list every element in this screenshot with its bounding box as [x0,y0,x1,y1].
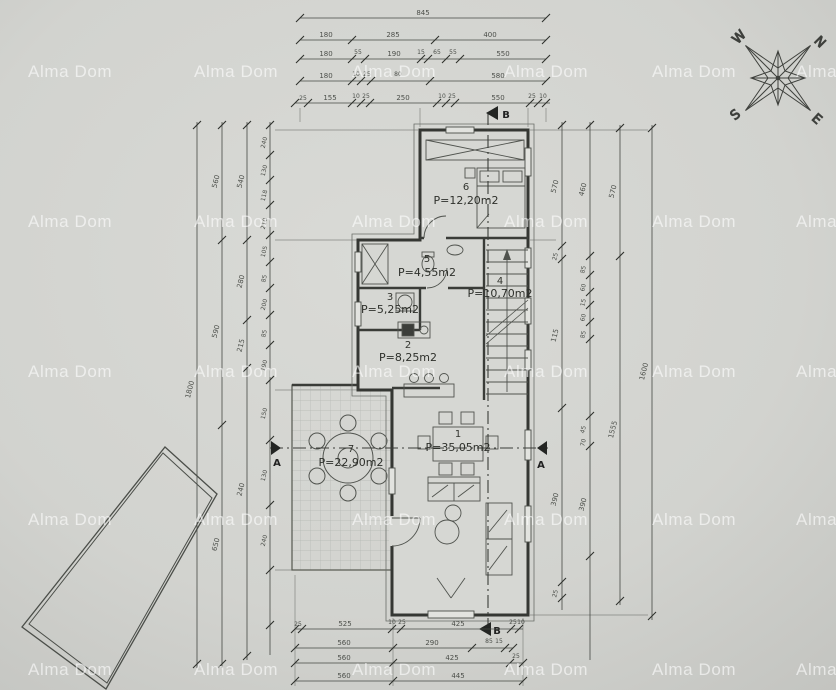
dim-label: 25 [448,93,456,100]
terrace [292,385,392,570]
dim-label: 10 [352,71,360,78]
room-3-number: 3 [387,292,393,303]
dim-label: 425 [445,654,458,662]
dim-label: 425 [451,620,464,628]
room-5-area: P=4,55m2 [398,266,456,279]
dim-label: 25 [299,95,307,102]
dim-label: 10 [388,619,396,626]
dim-label: 180 [319,72,332,80]
section-b-label-bottom: B [493,626,501,637]
dim-label: 25 [362,93,370,100]
dim-label: 15 [495,638,503,645]
dim-label: 550 [491,94,504,102]
room-4-area: P=10,70m2 [467,287,532,300]
dim-label: 25 [528,93,536,100]
room-4-number: 4 [497,276,503,287]
dim-label: 25 [294,621,302,628]
dim-label: 25 [363,71,371,78]
dim-label: 445 [451,672,464,680]
dim-label: 580 [491,72,504,80]
dim-label: 55 [354,49,362,56]
dim-label: 845 [416,9,429,17]
dim-label: 25 [509,619,517,626]
dim-label: 180 [319,50,332,58]
room-2-area: P=8,25m2 [379,351,437,364]
dim-label: 400 [483,31,496,39]
dim-label: 285 [386,31,399,39]
dim-label: 25 [512,653,520,660]
dim-label: 525 [338,620,351,628]
dim-label: 25 [398,619,406,626]
dim-label: 155 [323,94,336,102]
section-a-label-right: A [537,460,545,471]
dim-label: 190 [387,50,400,58]
dim-label: 560 [337,672,350,680]
dim-label: 80 [394,71,402,78]
room-7-number: 7 [348,444,354,455]
dim-label: 15 [417,49,425,56]
dim-label: 55 [449,49,457,56]
room-7-area: P=22,90m2 [318,456,383,469]
dim-label: 550 [496,50,509,58]
dim-label: 10 [352,93,360,100]
dim-label: 65 [433,49,441,56]
dim-label: 250 [396,94,409,102]
dim-label: 10 [539,93,547,100]
floor-plan-drawing: B B A A 6 P=12,20m2 5 P=4,55m2 4 P=10,70… [0,0,836,690]
dim-label: 560 [337,639,350,647]
dim-label: 85 [485,638,493,645]
section-b-label-top: B [502,110,510,121]
dim-label: 560 [337,654,350,662]
floor-plan-sheet: B B A A 6 P=12,20m2 5 P=4,55m2 4 P=10,70… [0,0,836,690]
room-5-number: 5 [424,254,430,265]
dim-label: 290 [425,639,438,647]
room-3-area: P=5,25m2 [361,303,419,316]
dim-label: 10 [438,93,446,100]
dim-label: 180 [319,31,332,39]
section-a-label-left: A [273,458,281,469]
room-2-number: 2 [405,340,411,351]
dim-label: 10 [517,619,525,626]
room-6-area: P=12,20m2 [433,194,498,207]
room-1-area: P=35,05m2 [425,441,490,454]
room-6-number: 6 [463,182,469,193]
room-1-number: 1 [455,429,461,440]
